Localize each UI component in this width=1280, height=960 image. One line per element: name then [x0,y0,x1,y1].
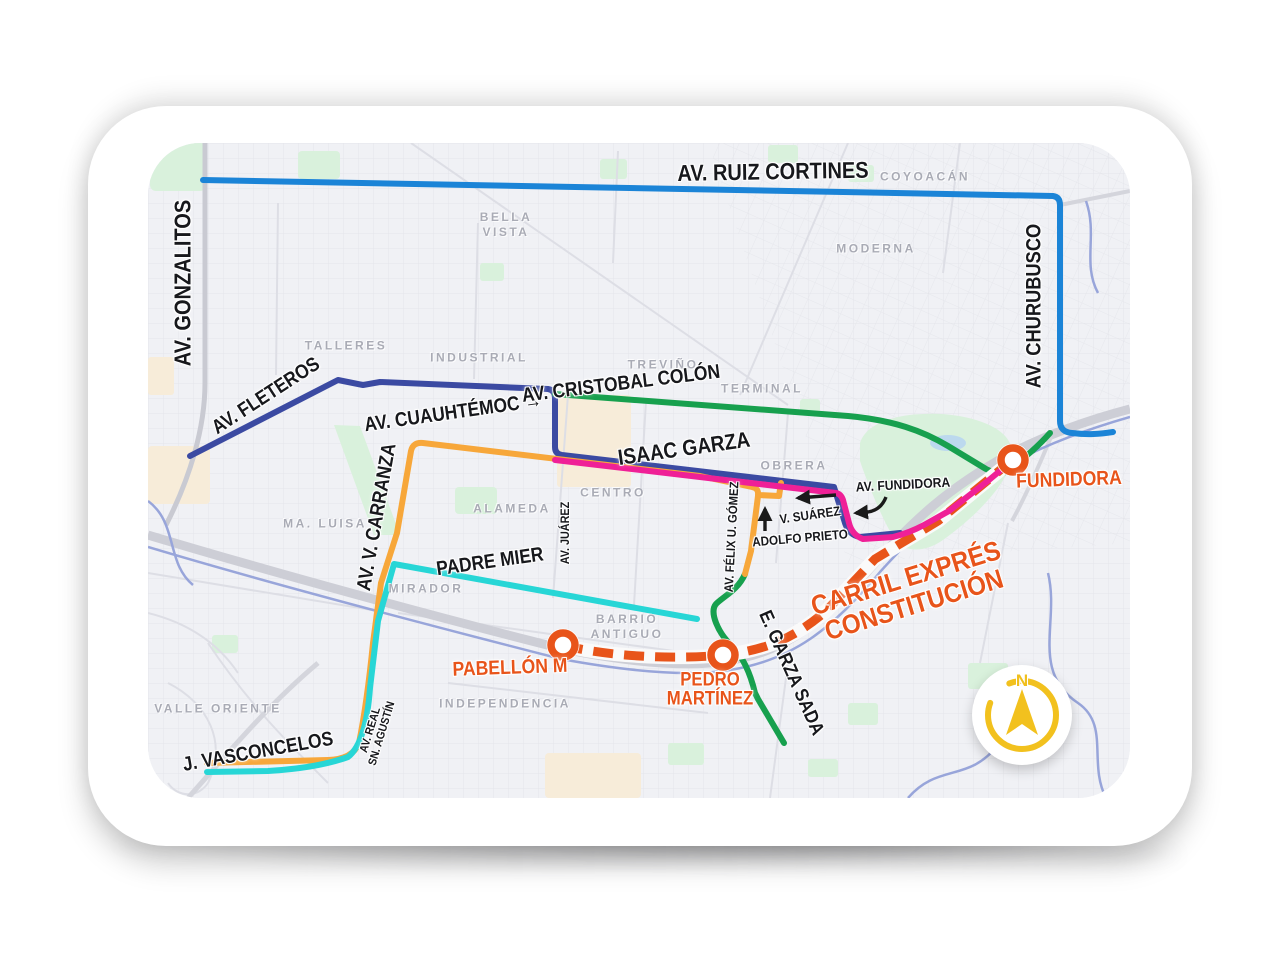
station-marker-pedro-martinez[interactable] [707,639,740,672]
area-alameda: ALAMEDA [473,502,551,517]
compass-north-arrow-icon [1006,689,1038,735]
area-coyoacan: COYOACÁN [880,170,970,185]
label-churubusco: AV. CHURUBUSCO [1023,224,1044,388]
label-gonzalitos: AV. GONZALITOS [171,200,194,366]
area-terminal: TERMINAL [721,382,803,397]
compass[interactable]: N [972,665,1072,765]
area-centro: CENTRO [580,486,646,501]
label-station-pabellon-m: PABELLÓN M [452,656,568,680]
label-juarez: AV. JUÁREZ [559,502,571,564]
compass-north-label: N [1016,671,1028,691]
area-obrera: OBRERA [760,459,827,474]
label-station-pedro-martinez: PEDROMARTÍNEZ [667,671,753,710]
map-card: BELLAVISTA COYOACÁN MODERNA TALLERES IND… [88,106,1192,846]
area-moderna: MODERNA [836,242,916,257]
area-valle-oriente: VALLE ORIENTE [154,702,282,717]
page: BELLAVISTA COYOACÁN MODERNA TALLERES IND… [0,0,1280,960]
area-talleres: TALLERES [305,339,387,354]
label-ruiz-cortines: AV. RUIZ CORTINES [677,159,869,186]
area-industrial: INDUSTRIAL [430,351,528,366]
label-station-fundidora: FUNDIDORA [1016,468,1122,492]
area-bella-vista: BELLAVISTA [480,210,533,240]
map-canvas[interactable]: BELLAVISTA COYOACÁN MODERNA TALLERES IND… [148,143,1130,798]
area-mirador: MIRADOR [389,582,464,597]
area-independencia: INDEPENDENCIA [439,697,571,712]
area-ma-luisa: MA. LUISA [283,517,367,532]
area-barrio-antiguo: BARRIOANTIGUO [591,612,664,642]
